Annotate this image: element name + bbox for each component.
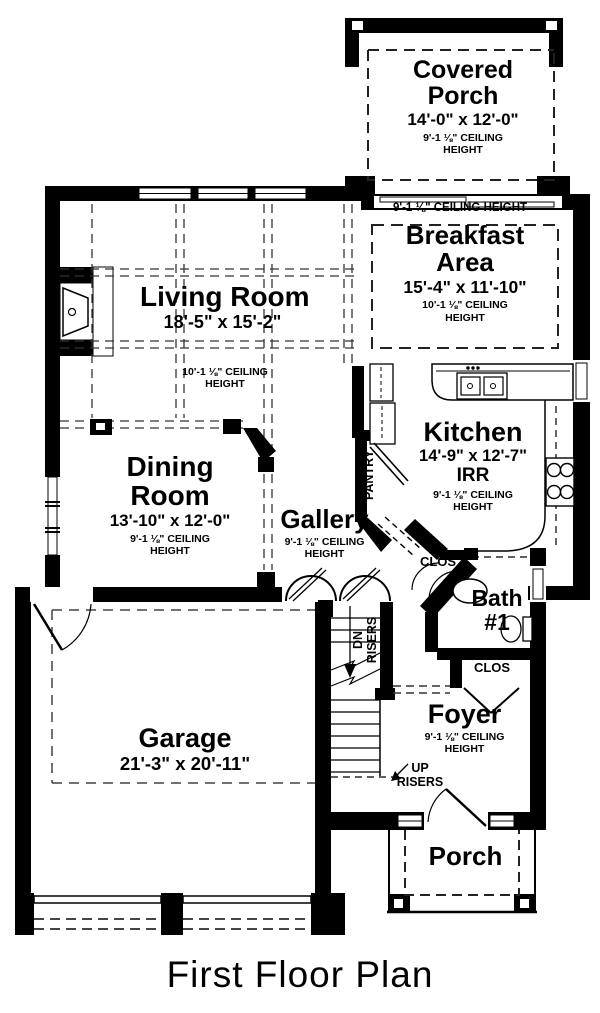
living-room-windows [139,188,306,199]
pantry-label: PANTRY [363,435,377,515]
room-name: Kitchen [408,418,538,446]
kitchen-window [573,360,590,402]
room-label-bath: Bath #1 [458,587,536,635]
room-dims: 13'-10" x 12'-0" [100,512,240,530]
room-name: Breakfast Area [390,222,540,276]
room-label-dining: Dining Room 13'-10" x 12'-0" 9'-1 ⅛" CEI… [100,452,240,558]
fireplace [58,267,113,356]
room-name: Covered Porch [393,57,533,109]
room-dims: 18'-5" x 15'-2" [140,313,305,332]
room-label-porch: Porch [418,843,513,870]
stairs-down-label: DN RISERS [352,615,380,665]
ceiling-height: 9'-1 ⅛" CEILING HEIGHT [425,489,521,514]
front-entry [331,789,546,830]
ceiling-height: 10'-1 ⅛" CEILING HEIGHT [177,366,273,391]
ceiling-height: 9'-1 ⅛" CEILING HEIGHT [415,132,511,157]
room-name: Gallery [272,506,377,533]
stairs-up-label: UP RISERS [394,762,446,790]
room-label-breakfast: Breakfast Area 15'-4" x 11'-10" 10'-1 ⅛"… [390,222,540,324]
ceiling-height: 9'-1 ⅛" CEILING HEIGHT [277,536,373,561]
room-dims: 14'-9" x 12'-7" [408,448,538,465]
room-dims: 15'-4" x 11'-10" [390,278,540,296]
room-dims: 14'-0" x 12'-0" [393,111,533,129]
dining-window [45,477,60,555]
room-label-covered-porch: Covered Porch 14'-0" x 12'-0" 9'-1 ⅛" CE… [393,57,533,156]
room-label-kitchen: Kitchen 14'-9" x 12'-7" IRR 9'-1 ⅛" CEIL… [408,418,538,514]
living-ceiling: 10'-1 ⅛" CEILING HEIGHT [160,366,290,391]
room-name: Garage [105,724,265,752]
room-name: Dining Room [100,452,240,510]
ceiling-height: 10'-1 ⅛" CEILING HEIGHT [417,299,513,324]
room-label-foyer: Foyer 9'-1 ⅛" CEILING HEIGHT [407,700,522,756]
plan-title: First Floor Plan [0,954,600,996]
room-dims: 21'-3" x 20'-11" [105,754,265,773]
room-label-gallery: Gallery 9'-1 ⅛" CEILING HEIGHT [272,506,377,561]
foyer-opening [393,686,450,693]
room-name: Foyer [407,700,522,728]
first-floor-plan: Covered Porch 14'-0" x 12'-0" 9'-1 ⅛" CE… [0,0,600,1013]
ceiling-height: 9'-1 ⅛" CEILING HEIGHT [417,731,513,756]
room-note: IRR [408,466,538,486]
dn-arrowhead [344,664,356,678]
garage-entry-door [34,604,91,650]
hall-closet-label: CLOS [412,555,464,569]
ceiling-height: 9'-1 ⅛" CEILING HEIGHT [122,533,218,558]
foyer-closet-label: CLOS [466,661,518,675]
room-name: Living Room [140,282,305,311]
entry-strip-ceiling: 9'-1 ⅛" CEILING HEIGHT [380,203,540,215]
room-label-garage: Garage 21'-3" x 20'-11" [105,724,265,773]
room-label-living: Living Room 18'-5" x 15'-2" [140,282,305,332]
